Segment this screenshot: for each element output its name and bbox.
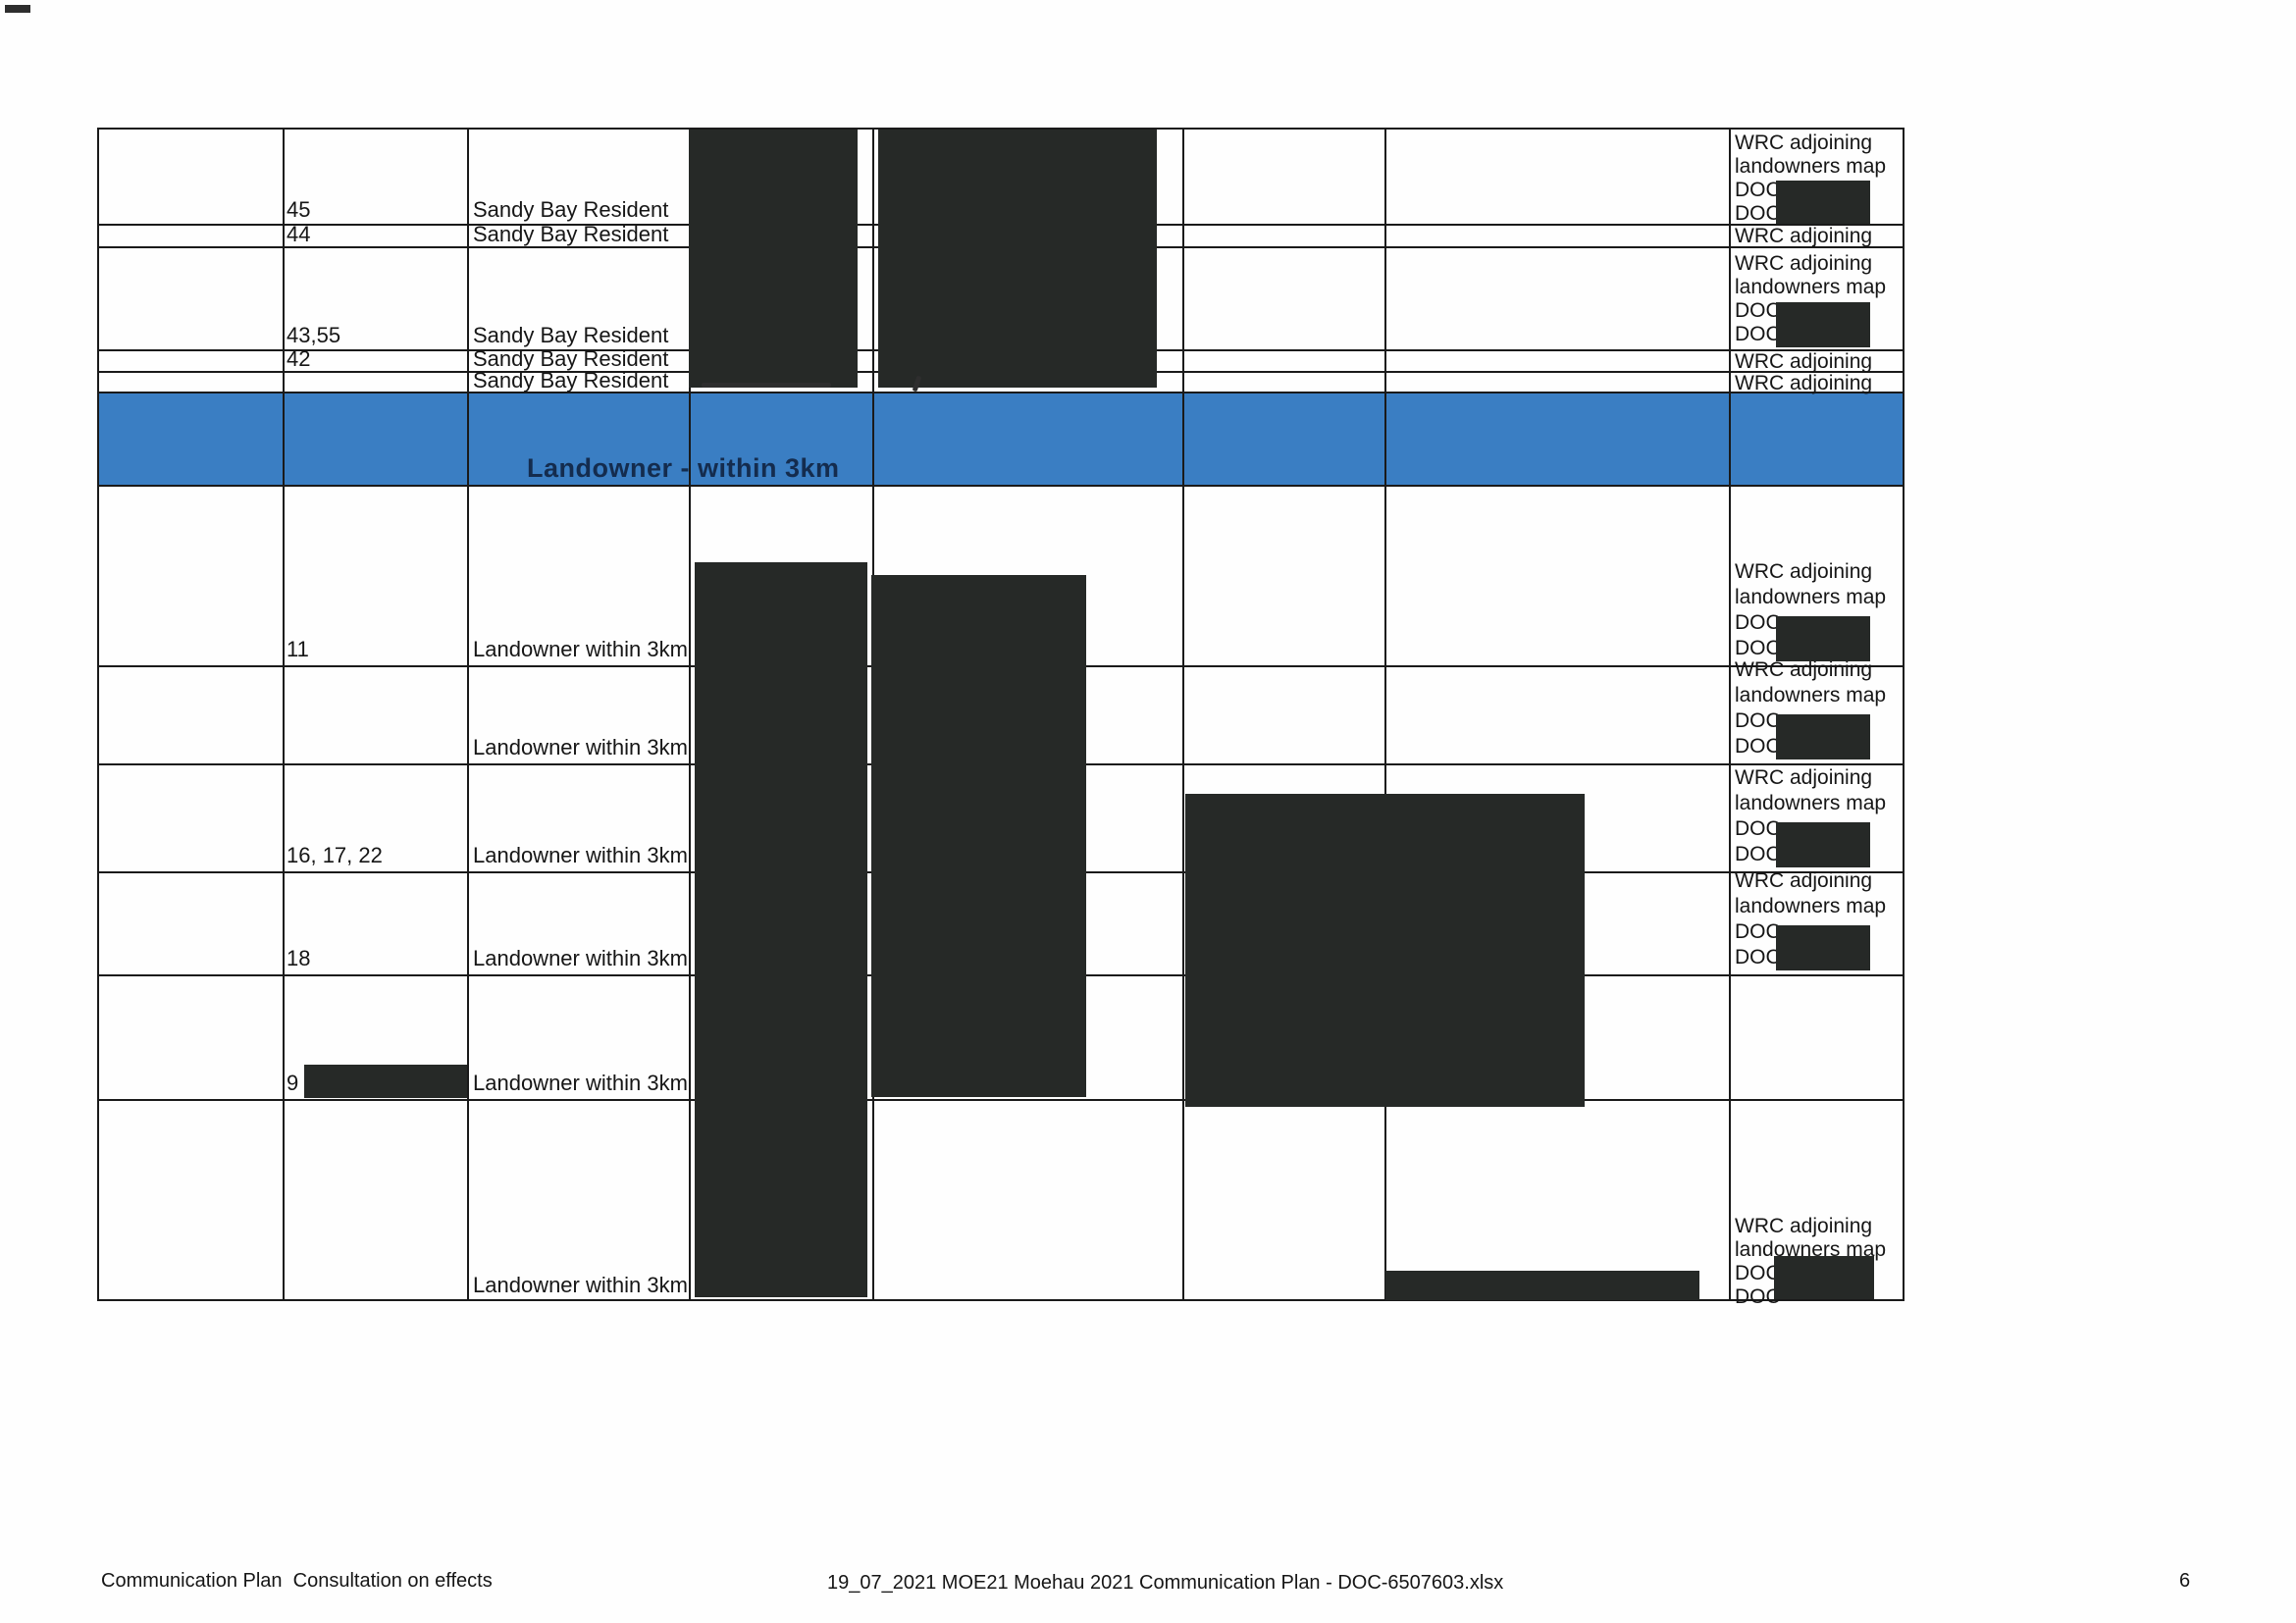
redaction-block — [695, 562, 867, 1297]
row-name: Sandy Bay Resident — [473, 369, 668, 393]
doc-ref-redaction — [1776, 714, 1870, 759]
redaction-block — [871, 575, 1086, 1097]
redaction-block — [878, 130, 1157, 388]
doc-ref-redaction — [1776, 616, 1870, 661]
doc-ref-redaction — [1774, 1256, 1874, 1299]
row-name: Landowner within 3km — [473, 844, 688, 867]
row-name: Landowner within 3km — [473, 947, 688, 970]
wrc-map-line: WRC adjoining — [1735, 560, 1872, 583]
doc-ref-redaction — [1776, 925, 1870, 970]
wrc-map-line: landowners map — [1735, 586, 1886, 608]
wrc-map-line: landowners map — [1735, 276, 1886, 298]
redaction-block — [1385, 1271, 1699, 1300]
redaction-remnant — [702, 383, 831, 388]
grid-line — [97, 1099, 1905, 1101]
footer-left: Communication Plan Consultation on effec… — [101, 1570, 493, 1593]
row-name: Landowner within 3km — [473, 736, 688, 759]
grid-line — [283, 128, 285, 1301]
wrc-short-label: WRC adjoining — [1735, 350, 1872, 373]
row-name: Sandy Bay Resident — [473, 324, 668, 347]
footer-page-number: 6 — [2179, 1570, 2190, 1593]
grid-line — [1182, 128, 1184, 1301]
redaction-block — [1185, 794, 1585, 1107]
row-name: Landowner within 3km — [473, 1274, 688, 1297]
wrc-map-line: WRC adjoining — [1735, 131, 1872, 154]
wrc-map-line: landowners map — [1735, 155, 1886, 178]
redaction-block — [689, 130, 858, 388]
wrc-map-line: WRC adjoining — [1735, 658, 1872, 681]
wrc-map-line: landowners map — [1735, 684, 1886, 707]
grid-line — [1384, 128, 1386, 1301]
row-ids: 43,55 — [287, 324, 340, 347]
row-name: Landowner within 3km — [473, 638, 688, 661]
wrc-map-line: WRC adjoining — [1735, 1215, 1872, 1237]
row-ids: 9 — [287, 1072, 298, 1095]
doc-ref-redaction — [1776, 822, 1870, 867]
wrc-map-line: landowners map — [1735, 895, 1886, 917]
row-name: Sandy Bay Resident — [473, 198, 668, 222]
grid-line — [1729, 128, 1731, 1301]
row-ids: 44 — [287, 223, 310, 246]
row-ids: 42 — [287, 347, 310, 371]
grid-line — [467, 128, 469, 1301]
section-banner-label: Landowner - within 3km — [527, 453, 840, 484]
row-name: Sandy Bay Resident — [473, 223, 668, 246]
row-name: Landowner within 3km — [473, 1072, 688, 1095]
row-ids: 16, 17, 22 — [287, 844, 383, 867]
wrc-map-line: WRC adjoining — [1735, 252, 1872, 275]
wrc-map-line: WRC adjoining — [1735, 869, 1872, 892]
wrc-short-label: WRC adjoining — [1735, 225, 1872, 247]
row-ids: 18 — [287, 947, 310, 970]
row-ids: 45 — [287, 198, 310, 222]
doc-ref-redaction — [1776, 181, 1870, 224]
grid-line — [97, 392, 1905, 393]
grid-line — [97, 485, 1905, 487]
redaction-block — [304, 1065, 467, 1098]
doc-ref-redaction — [1776, 302, 1870, 347]
scanned-spreadsheet-page: 45 44 43,55 42 11 16, 17, 22 18 9 Sandy … — [0, 0, 2296, 1623]
wrc-map-line: landowners map — [1735, 792, 1886, 814]
scan-artifact — [5, 5, 30, 13]
footer-center-filename: 19_07_2021 MOE21 Moehau 2021 Communicati… — [827, 1572, 1503, 1595]
row-ids: 11 — [287, 638, 309, 661]
wrc-map-line: WRC adjoining — [1735, 766, 1872, 789]
wrc-short-label: WRC adjoining — [1735, 372, 1872, 394]
